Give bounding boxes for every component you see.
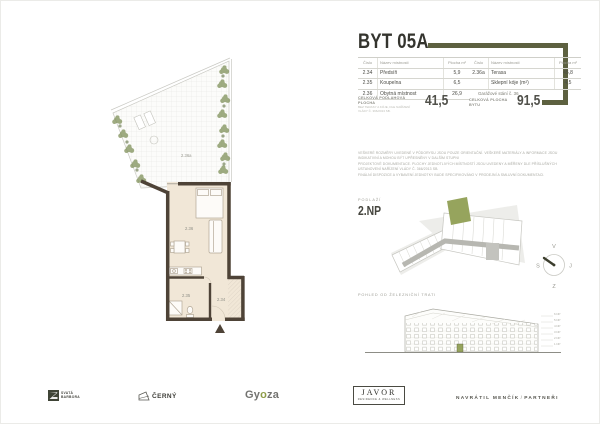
elevation-level-label: 1.NP <box>554 343 560 346</box>
col-room-name: Název místnosti <box>489 58 555 69</box>
terrace-label: 2.36a <box>181 153 192 158</box>
svata-barbora-icon <box>48 390 59 401</box>
table-row: 2.35 Koupelna 6,5 <box>358 79 470 90</box>
col-area: Plocha m² <box>555 58 582 69</box>
floor-plan: 2.36a <box>96 56 256 346</box>
entrance-arrow-icon <box>215 324 225 333</box>
compass-rose: V S Z J <box>529 237 575 291</box>
total-floor-area-sublabel: BEZ TERASY A KÓJE, DLE NAŘÍZENÍ VLÁDY Č.… <box>358 106 418 114</box>
svata-barbora-logo: SVATÁ BARBORA <box>48 390 80 401</box>
elevation-level-label: 4.NP <box>554 325 560 328</box>
total-unit-area-value: 91,5 <box>517 92 540 109</box>
level-leader-lines <box>541 316 553 346</box>
entry-hall-floor <box>228 279 241 318</box>
building-elevation <box>357 301 569 359</box>
gyoza-o-accent: o <box>260 389 267 401</box>
total-unit-area-label: CELKOVÁ PLOCHA BYTU <box>469 98 515 108</box>
floor-value: 2.NP <box>358 203 381 218</box>
gyoza-logo: Gyoza <box>245 389 279 401</box>
apartment-sheet-page: 2.36a <box>0 0 600 424</box>
floor-caption: PODLAŽÍ <box>358 198 381 202</box>
highlighted-unit-elevation <box>457 344 463 352</box>
keyplan-highlighted-unit <box>447 197 471 225</box>
hall-label: 2.34 <box>217 297 226 302</box>
cerny-logo: ČERNÝ <box>138 391 177 401</box>
disclaimer-line: PROJEKTOVÉ DOKUMENTACE. PLOCHY JEDNOTLIV… <box>358 162 569 173</box>
accent-rule-bottom <box>542 100 568 105</box>
terrace: 2.36a <box>111 58 232 188</box>
compass-south: J <box>569 264 572 270</box>
disclaimer-line: FINÁLNÍ DISPOZICE A VYBAVENÍ JEDNOTKY BU… <box>358 173 569 178</box>
disclaimer: VEŠKERÉ ROZMĚRY UVEDENÉ V PŮDORYSU JSOU … <box>358 151 569 178</box>
col-number: Číslo <box>469 58 489 69</box>
table-row: 2.34 Předsíň 5,9 <box>358 68 470 79</box>
house-icon <box>138 391 150 401</box>
elevation-caption: POHLED OD ŽELEZNIČNÍ TRATI <box>358 293 436 297</box>
accent-rule-top <box>428 43 568 48</box>
table-header-row: Číslo Název místnosti Plocha m² <box>358 58 470 69</box>
compass-north: S <box>536 264 540 270</box>
table-header-row: Číslo Název místnosti Plocha m² <box>469 58 581 69</box>
navratil-mencik-logo: NAVRÁTIL MENČÍK/PARTNEŘI <box>456 396 559 401</box>
page-title: BYT 05A <box>358 30 429 54</box>
col-number: Číslo <box>358 58 378 69</box>
living-room-label: 2.36 <box>185 226 194 231</box>
disclaimer-line: VEŠKERÉ ROZMĚRY UVEDENÉ V PŮDORYSU JSOU … <box>358 151 569 162</box>
compass-west: Z <box>552 284 556 290</box>
total-floor-area-block: CELKOVÁ PODLAHOVÁ PLOCHA BEZ TERASY A KÓ… <box>358 96 418 114</box>
bathroom-label: 2.35 <box>182 293 191 298</box>
elevation-level-label: 3.NP <box>554 331 560 334</box>
window-grid <box>406 323 537 351</box>
table-row: Sklepní kóje (m²) 4,5 <box>469 79 581 90</box>
elevation-level-label: 5.NP <box>554 319 560 322</box>
table-row: 2.36a Terasa 45,8 <box>469 68 581 79</box>
col-area: Plocha m² <box>444 58 471 69</box>
floor-keyplan <box>389 193 539 293</box>
compass-east: V <box>552 244 556 250</box>
keyplan-core <box>486 243 499 260</box>
elevation-level-label: 6.NP <box>554 313 560 316</box>
total-floor-area-value: 41,5 <box>425 92 448 109</box>
elevation-level-label: 2.NP <box>554 337 560 340</box>
room-table-left: Číslo Název místnosti Plocha m² 2.34 Pře… <box>358 57 470 100</box>
col-room-name: Název místnosti <box>378 58 444 69</box>
javor-logo: JAVOR RESIDENCE & WELLNESS <box>353 386 405 405</box>
